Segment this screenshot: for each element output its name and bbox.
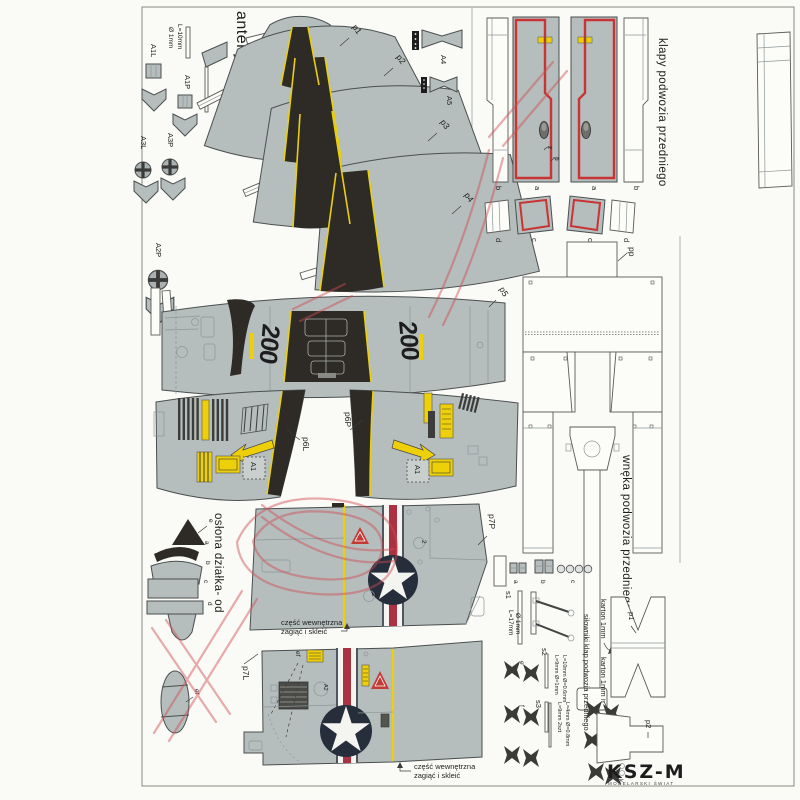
label-door-d1: d (494, 238, 503, 242)
label-karton-p1: p1 (627, 612, 636, 620)
yellow-bar-right (419, 334, 423, 360)
cardboard-note-1: karton 1mm (599, 599, 608, 639)
s1-diameter-note: Ø 1mm (514, 613, 521, 634)
part-a3p-disc (162, 159, 178, 175)
label-x-f: f (518, 705, 525, 707)
label-gc-b: b (204, 561, 211, 565)
label-s3: s3 (534, 700, 543, 708)
fastener-b2 (545, 560, 553, 573)
label-door-a2: a (590, 186, 599, 191)
part-a1l-base (146, 64, 161, 78)
label-gc-e: e (207, 519, 214, 523)
door-a-right (571, 17, 617, 182)
part-a1p-fin (173, 114, 197, 136)
s2-wire-strip (545, 654, 548, 688)
part-a1p-base (178, 95, 192, 108)
modex-200-left: 200 (254, 322, 285, 366)
fastener-c-discs (557, 565, 592, 573)
label-x-h: h (599, 699, 606, 703)
publisher-logo: KSZ-M (607, 761, 686, 783)
s3-note-1: L=9mm 2szt (556, 702, 562, 733)
label-a1-left: A1 (249, 462, 258, 471)
dark-bar-right (428, 411, 435, 438)
cardboard-note-2: karton 1mm (599, 657, 608, 697)
fold-note-p7l-2: zagiąć i skleić (414, 771, 461, 780)
door-c-right (567, 196, 605, 234)
publisher-tagline: MODELARSKI ŚWIAT (608, 779, 674, 786)
s3-note-2: L=4mm Ø=0.8mm (564, 702, 570, 747)
part-gc-c (148, 579, 198, 598)
sheet-graphic: anteny L=10mm Ø 1mm A1L A1P A3L A3P A2P … (0, 0, 800, 800)
label-karton-p2: p2 (644, 720, 653, 728)
label-a4: A4 (439, 55, 448, 64)
caution-strip-p7l (362, 665, 369, 686)
cardboard-section: karton 1mm p1 karton 1mm p2 KSZ-M MODELA… (597, 597, 686, 786)
door-d-right (610, 200, 635, 233)
label-fast-a: a (512, 580, 519, 584)
s2-note-2: L=10mm Ø=0.6mm (561, 655, 567, 703)
part-a3l-fin (134, 181, 158, 203)
label-circled-2a: 2 (420, 540, 427, 544)
part-a3p-fin (161, 178, 185, 200)
wire-diameter-note: Ø 1mm (167, 27, 174, 48)
part-gc-a (154, 547, 199, 562)
gear-doors-title: klapy podwozia przedniego (656, 38, 668, 187)
label-fast-c: c (569, 580, 576, 584)
warning-placard-right (429, 459, 453, 476)
label-gc-a: a (203, 541, 210, 545)
label-door-c1: c (530, 238, 539, 242)
gear-doors-section: klapy podwozia przedniego b a a b z p d (485, 17, 792, 242)
label-p5: p5 (497, 285, 511, 298)
label-door-c2: c (586, 238, 595, 242)
s3-wire-strip-2 (549, 703, 551, 747)
label-door-a1: a (533, 186, 542, 191)
label-pp: pp (627, 247, 637, 257)
s2-actuator-drawing (531, 592, 574, 641)
part-gc-ef (161, 671, 189, 733)
fold-note-p7l-1: część wewnętrzna (414, 762, 476, 771)
label-a5: A5 (445, 96, 454, 105)
gun-cover-section: osłona działka- od e a b c d ef (147, 513, 224, 733)
label-fast-b: b (539, 580, 546, 584)
fuselage-band-p5: 200 200 p5 (151, 285, 511, 398)
label-a1p: A1P (183, 75, 192, 89)
label-door-d2: d (622, 238, 631, 242)
label-a3p: A3P (166, 133, 175, 147)
label-gc-d: d (206, 602, 213, 606)
label-door-b2: b (632, 186, 641, 190)
fold-note-p7p-2: zagiąć i skleić (281, 627, 328, 636)
label-a2p: A2P (154, 243, 163, 257)
spar-strip-part (757, 32, 792, 188)
label-ef-p7l: ef (294, 651, 301, 657)
label-x-e: e (518, 661, 525, 665)
label-p6p: p6P (343, 412, 353, 427)
label-p7l: p7L (241, 666, 251, 680)
canopy-detail (318, 373, 336, 378)
diagonal-vent-left (241, 404, 268, 434)
model-sheet: anteny L=10mm Ø 1mm A1L A1P A3L A3P A2P … (0, 0, 800, 800)
antenna-wire-strip (186, 27, 190, 58)
label-a1l: A1L (149, 44, 158, 57)
s1-length-note: L=17mm (507, 610, 514, 635)
antenna-blade (202, 42, 227, 67)
anti-glare-center (284, 311, 371, 382)
warning-placard-left (216, 456, 240, 473)
gun-cover-title: osłona działka- od (212, 513, 224, 613)
label-a3l: A3L (139, 136, 148, 149)
label-circled-2b: 2 (370, 593, 377, 597)
part-karton-p1 (611, 597, 665, 697)
label-s1: s1 (504, 591, 513, 599)
gear-bay-title: wnęka podwozia przedniego (620, 454, 632, 610)
part-a3l-disc (135, 162, 151, 178)
part-a4 (422, 30, 462, 48)
fuselage-panels-p6: A1 A1 p6L p6P (154, 390, 518, 500)
yellow-stripe-left (202, 400, 209, 440)
label-circled-a2: A2 (322, 684, 328, 691)
part-p6p (350, 390, 518, 499)
label-gc-c: c (202, 580, 209, 584)
part-gc-e (172, 519, 205, 545)
label-p7p: p7P (487, 514, 497, 529)
fastener-b1 (535, 560, 543, 573)
label-p6l: p6L (301, 437, 311, 451)
s3-wire-strip-1 (545, 702, 548, 732)
antennas-section: anteny L=10mm Ø 1mm A1L A1P A3L A3P A2P (134, 11, 250, 323)
fuselage-panel-p7l: A2 ef p7L część wewnętrzna zagiąć i skle… (241, 641, 482, 780)
wire-length-note: L=10mm (176, 24, 183, 49)
door-c-left (515, 196, 553, 234)
part-a1l-fin (142, 89, 166, 111)
yellow-bar-left (250, 333, 254, 359)
door-b-right (624, 18, 648, 182)
fold-note-p7p-1: część wewnętrzna (281, 618, 343, 627)
small-strip-part (494, 556, 506, 586)
s2-note-1: L=9mm Ø=1mm (553, 655, 559, 695)
label-a1-right: A1 (413, 465, 422, 474)
part-a2p-disc (148, 270, 167, 289)
